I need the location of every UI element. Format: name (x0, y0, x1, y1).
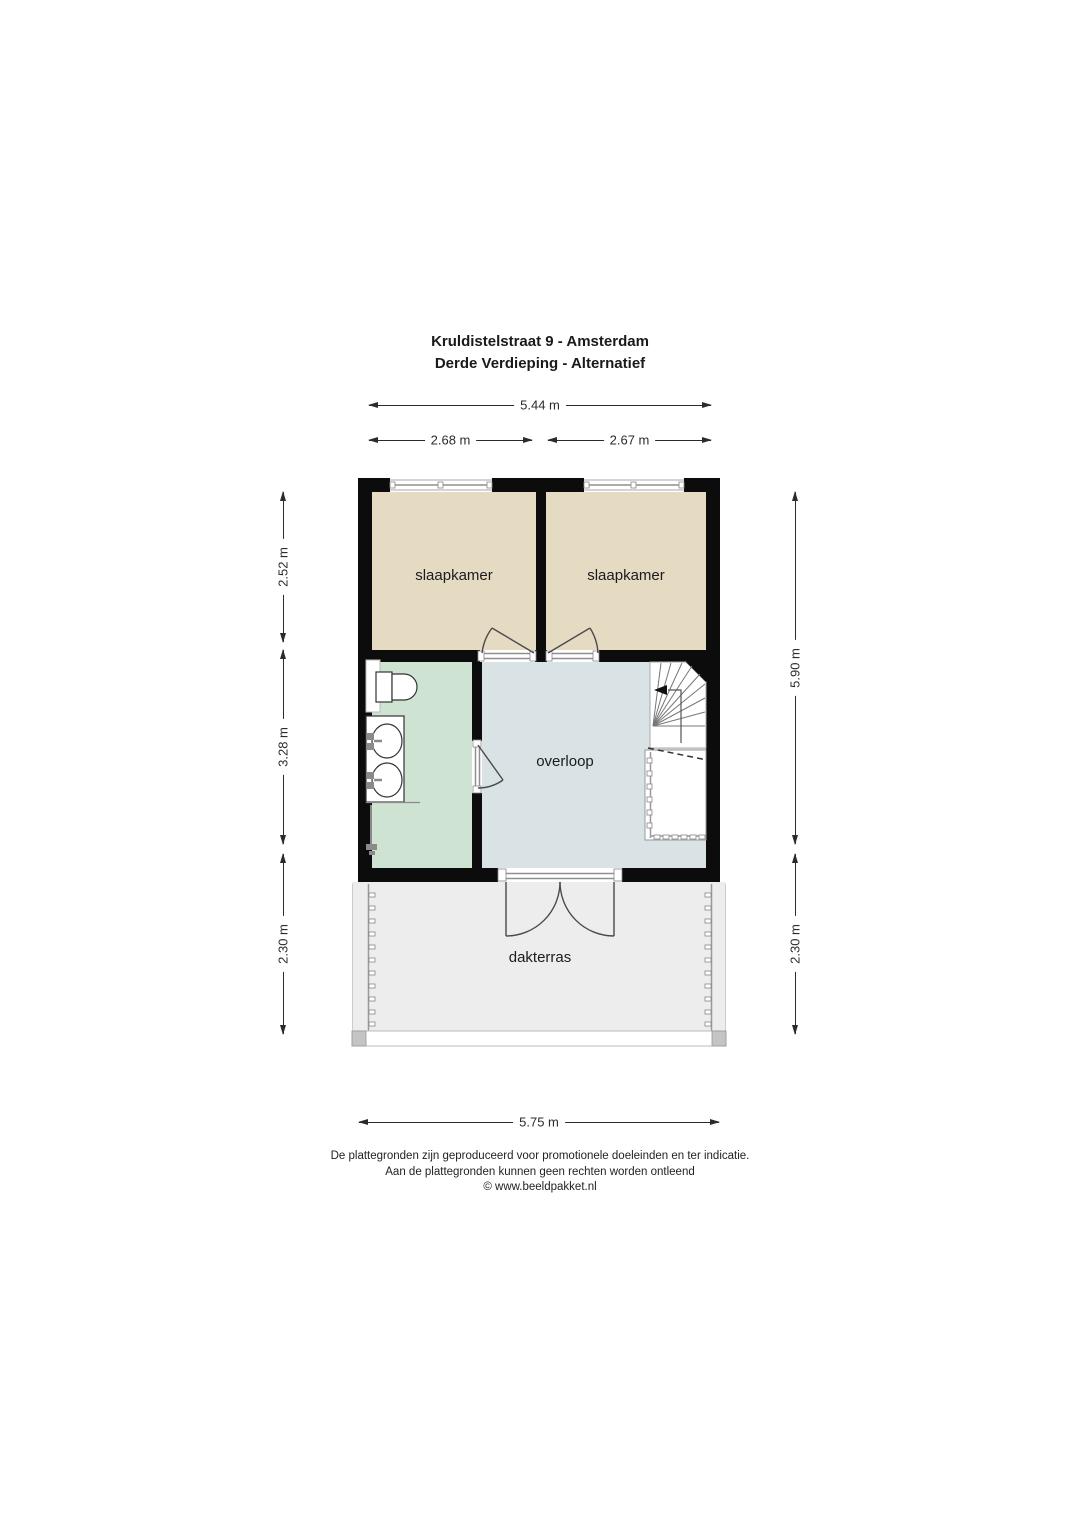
dimension-top-total: 5.44 m (368, 397, 712, 413)
dimension-label: 2.30 m (788, 916, 803, 972)
window-1 (390, 479, 492, 491)
dimension-left-lower: 2.30 m (275, 853, 291, 1035)
bedroom-left-doorway (478, 650, 536, 662)
terrace-doorway (498, 868, 622, 882)
dimension-right-lower: 2.30 m (787, 853, 803, 1035)
bedroom-right-door (548, 628, 598, 653)
footer-line-2: Aan de plattegronden kunnen geen rechten… (0, 1165, 1080, 1181)
dimension-label: 2.68 m (425, 433, 477, 448)
stair-void (645, 748, 707, 840)
terrace-double-doors (506, 882, 614, 936)
dimension-label: 2.30 m (276, 916, 291, 972)
dimension-bottom-total: 5.75 m (358, 1114, 720, 1130)
dimension-label: 5.75 m (513, 1115, 565, 1130)
landing-label: overloop (484, 753, 646, 770)
footer-line-1: De plattegronden zijn geproduceerd voor … (0, 1149, 1080, 1165)
dimension-label: 2.67 m (604, 433, 656, 448)
title-block: Kruldistelstraat 9 - Amsterdam Derde Ver… (0, 331, 1080, 375)
plan-subtitle: Derde Verdieping - Alternatief (0, 353, 1080, 375)
floorplan-page: Kruldistelstraat 9 - Amsterdam Derde Ver… (0, 0, 1080, 1527)
dimension-left-upper: 2.52 m (275, 491, 291, 643)
dimension-top-right: 2.67 m (547, 432, 712, 448)
bedroom-left-label: slaapkamer (372, 567, 536, 584)
dimension-label: 5.90 m (788, 640, 803, 696)
bedroom-right-label: slaapkamer (546, 567, 706, 584)
dimension-top-left: 2.68 m (368, 432, 533, 448)
plan-title: Kruldistelstraat 9 - Amsterdam (0, 331, 1080, 353)
toilet (366, 660, 417, 712)
footer-line-3: © www.beeldpakket.nl (0, 1180, 1080, 1196)
dimension-label: 2.52 m (276, 539, 291, 595)
shower (366, 805, 377, 855)
dimension-right-upper: 5.90 m (787, 491, 803, 845)
bedroom-left-door (482, 628, 534, 653)
bedroom-right-doorway (546, 650, 599, 662)
staircase (650, 662, 706, 748)
dimension-left-middle: 3.28 m (275, 649, 291, 845)
dimension-label: 3.28 m (276, 719, 291, 775)
window-2 (584, 479, 684, 491)
terrace-label: dakterras (420, 949, 660, 966)
footer-disclaimer: De plattegronden zijn geproduceerd voor … (0, 1149, 1080, 1196)
vanity-double-sink (366, 716, 420, 803)
dimension-label: 5.44 m (514, 398, 566, 413)
